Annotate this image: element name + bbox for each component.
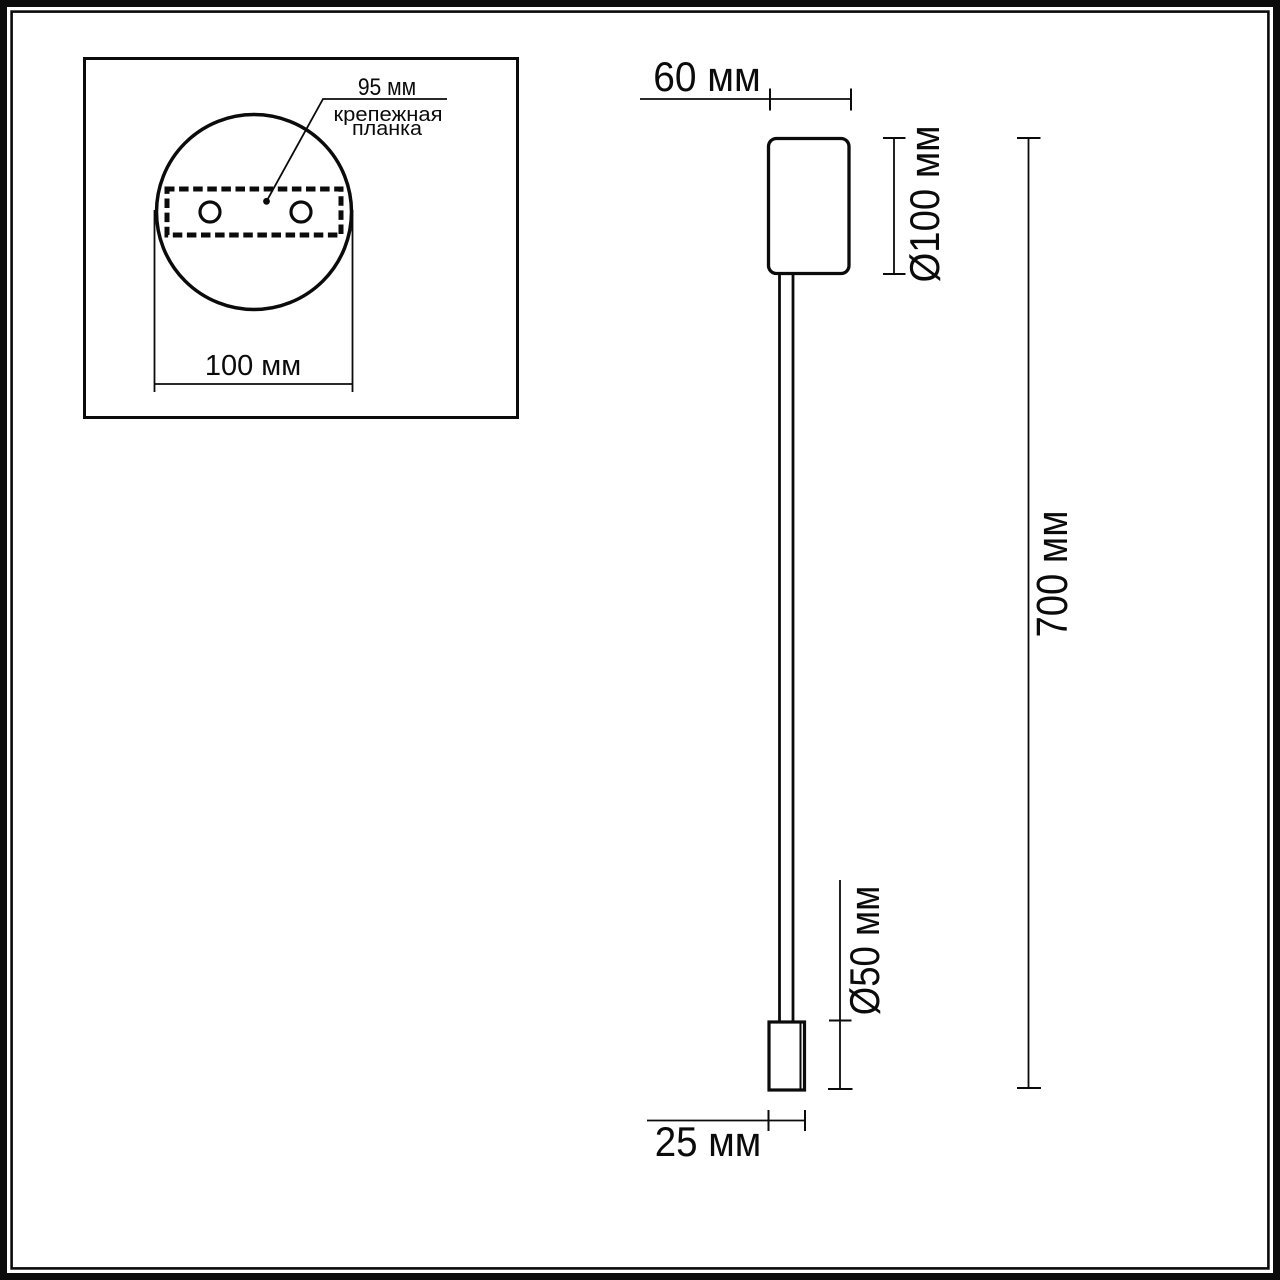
svg-text:60 мм: 60 мм	[653, 53, 761, 101]
svg-text:100 мм: 100 мм	[205, 350, 301, 382]
svg-text:25 мм: 25 мм	[655, 1118, 761, 1165]
svg-text:Ø100 мм: Ø100 мм	[901, 126, 948, 283]
svg-text:95 мм: 95 мм	[358, 74, 416, 101]
svg-text:планка: планка	[352, 118, 423, 140]
svg-text:Ø50 мм: Ø50 мм	[842, 886, 889, 1015]
svg-text:700 мм: 700 мм	[1028, 510, 1077, 637]
